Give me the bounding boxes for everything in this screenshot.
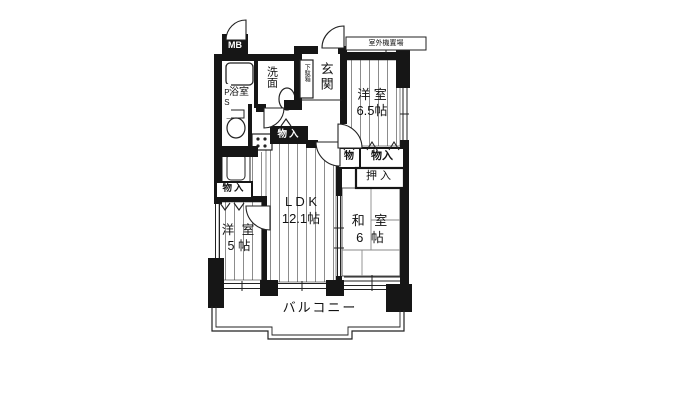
washroom-door-arc — [264, 108, 284, 128]
kitchen-sink-icon — [227, 154, 245, 180]
entrance-door-arc — [322, 26, 344, 48]
japanese-room-name: 和 室 — [342, 214, 400, 228]
ldk-name: L D K — [266, 195, 336, 209]
floorplan-linework — [0, 0, 700, 414]
japanese-room-size: 6 帖 — [342, 231, 400, 245]
shoe-cabinet-label: 下駄箱 — [303, 64, 309, 82]
closet-right-label: 物入 — [360, 151, 404, 163]
floorplan-page: MB PS 浴室 洗面 玄関 下駄箱 室外機置場 洋 室 6.5帖 物 物入 押… — [0, 0, 700, 414]
outdoor-unit-label: 室外機置場 — [346, 40, 426, 47]
bathtub-icon — [226, 63, 253, 85]
window-bottom-w5 — [224, 281, 260, 291]
balcony-label: バルコニー — [262, 301, 378, 315]
toilet-bowl-icon — [227, 118, 245, 138]
closet-left-label: 物入 — [216, 184, 252, 194]
meter-box-label: MB — [222, 41, 248, 50]
western-room-large-size: 6.5帖 — [342, 104, 402, 118]
mb-door-arc — [226, 20, 246, 40]
western-room-large-name: 洋 室 — [342, 88, 402, 102]
oshiire-label: 押入 — [356, 171, 404, 183]
western-room-small-size: 5 帖 — [216, 240, 262, 253]
closet-small-label: 物 — [338, 152, 360, 163]
washroom-label: 洗面 — [265, 66, 277, 88]
window-bottom-ldk — [278, 281, 326, 291]
ldk-size: 12.1帖 — [266, 212, 336, 226]
western-room-small-name: 洋 室 — [216, 224, 262, 237]
bathroom-label: 浴室 — [222, 88, 256, 99]
closet-hall-label: 物入 — [270, 130, 308, 140]
entrance-label: 玄関 — [319, 62, 333, 92]
